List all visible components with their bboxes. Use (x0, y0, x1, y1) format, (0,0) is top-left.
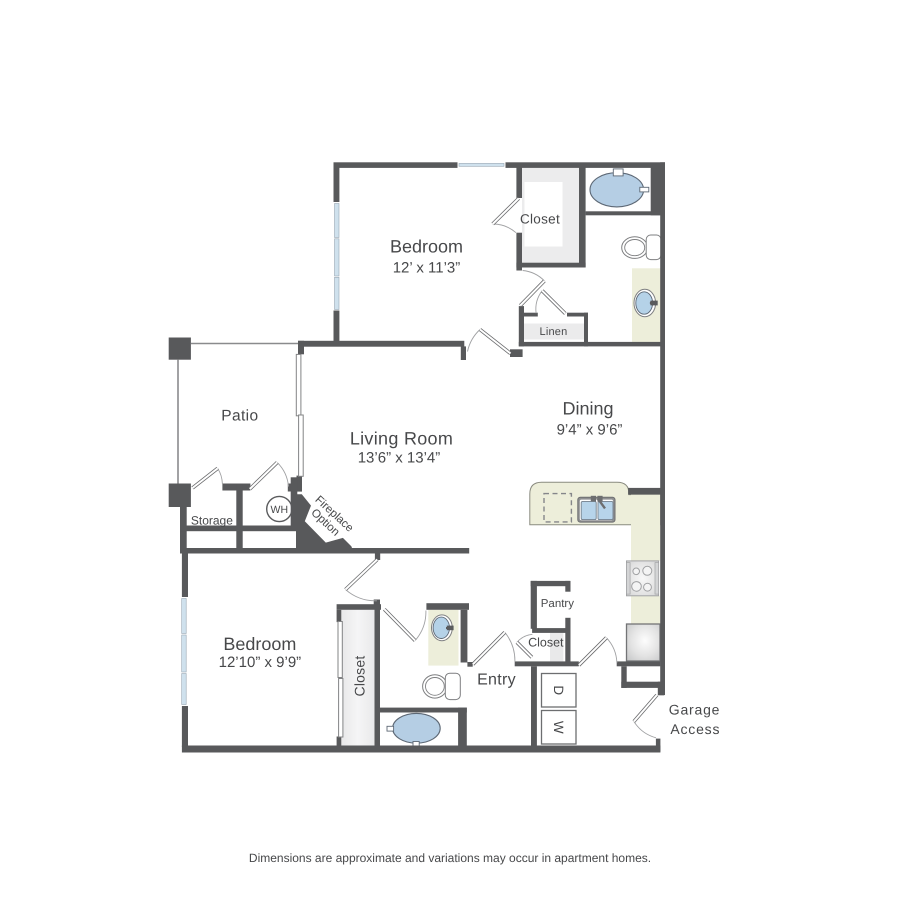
svg-text:9’4” x 9’6”: 9’4” x 9’6” (557, 421, 623, 438)
svg-text:13’6” x 13’4”: 13’6” x 13’4” (358, 450, 441, 467)
svg-text:Access: Access (670, 721, 720, 737)
svg-text:Pantry: Pantry (541, 598, 574, 610)
svg-text:12’10” x 9’9”: 12’10” x 9’9” (219, 654, 302, 671)
svg-text:Dining: Dining (562, 399, 613, 419)
svg-text:Dimensions are approximate and: Dimensions are approximate and variation… (249, 851, 651, 865)
svg-text:Bedroom: Bedroom (223, 634, 296, 654)
svg-text:W: W (551, 721, 566, 734)
svg-text:WH: WH (271, 504, 289, 516)
svg-text:Garage: Garage (669, 702, 721, 718)
svg-text:Closet: Closet (520, 212, 560, 227)
svg-text:12’ x 11’3”: 12’ x 11’3” (393, 259, 461, 276)
svg-text:Entry: Entry (477, 672, 516, 689)
svg-text:D: D (551, 685, 566, 695)
svg-text:Closet: Closet (351, 656, 367, 697)
svg-text:Patio: Patio (221, 407, 258, 424)
svg-text:Storage: Storage (191, 514, 233, 528)
svg-text:Closet: Closet (528, 636, 564, 650)
svg-text:Bedroom: Bedroom (390, 237, 463, 257)
svg-text:Linen: Linen (540, 326, 568, 338)
svg-text:Living Room: Living Room (350, 429, 453, 449)
